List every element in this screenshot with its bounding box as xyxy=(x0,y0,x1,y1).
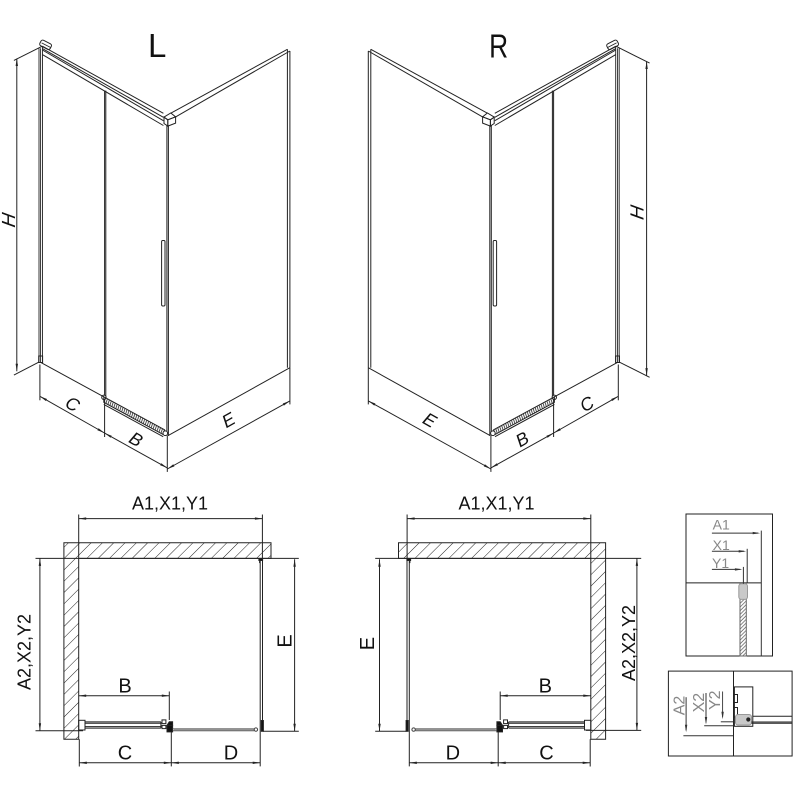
svg-text:A1,X1,Y1: A1,X1,Y1 xyxy=(132,494,208,514)
svg-text:A2,X2,Y2: A2,X2,Y2 xyxy=(15,614,35,690)
svg-text:X1: X1 xyxy=(713,537,730,553)
svg-text:D: D xyxy=(446,742,460,764)
svg-text:R: R xyxy=(489,28,508,65)
svg-text:A1: A1 xyxy=(713,517,730,533)
svg-text:C: C xyxy=(118,742,132,764)
svg-text:E: E xyxy=(275,634,297,647)
svg-text:X2: X2 xyxy=(691,693,708,713)
svg-text:D: D xyxy=(224,742,238,764)
svg-text:B: B xyxy=(118,676,131,698)
svg-text:L: L xyxy=(148,27,166,64)
svg-text:C: C xyxy=(539,742,553,764)
svg-text:E: E xyxy=(357,637,379,650)
svg-text:B: B xyxy=(539,676,552,698)
svg-text:A1,X1,Y1: A1,X1,Y1 xyxy=(458,494,534,514)
svg-text:A2,X2,Y2: A2,X2,Y2 xyxy=(619,605,639,681)
svg-text:Y2: Y2 xyxy=(707,690,724,710)
svg-text:Y1: Y1 xyxy=(712,555,729,571)
svg-text:A2: A2 xyxy=(672,696,689,716)
